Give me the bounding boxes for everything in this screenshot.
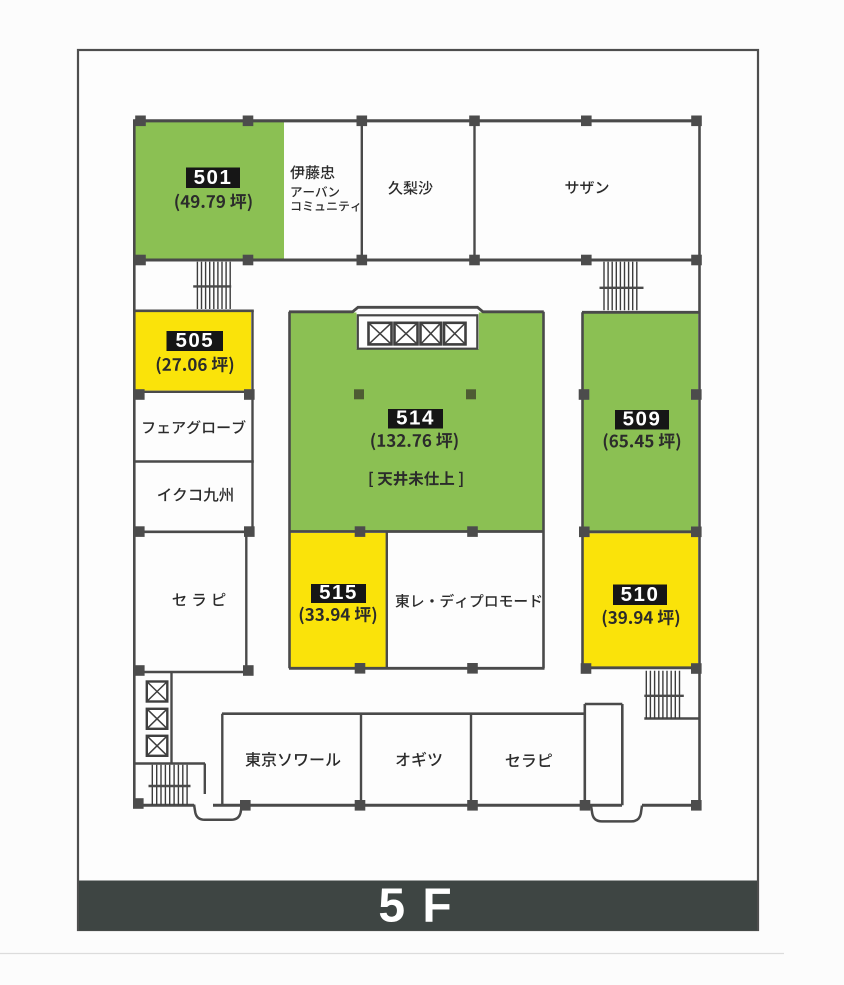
svg-text:515: 515 [319,581,358,604]
svg-text:509: 509 [623,408,662,431]
svg-text:514: 514 [396,407,435,430]
svg-text:5 F: 5 F [378,880,453,933]
svg-text:505: 505 [175,329,214,352]
svg-text:501: 501 [194,166,233,189]
svg-text:510: 510 [621,583,660,606]
